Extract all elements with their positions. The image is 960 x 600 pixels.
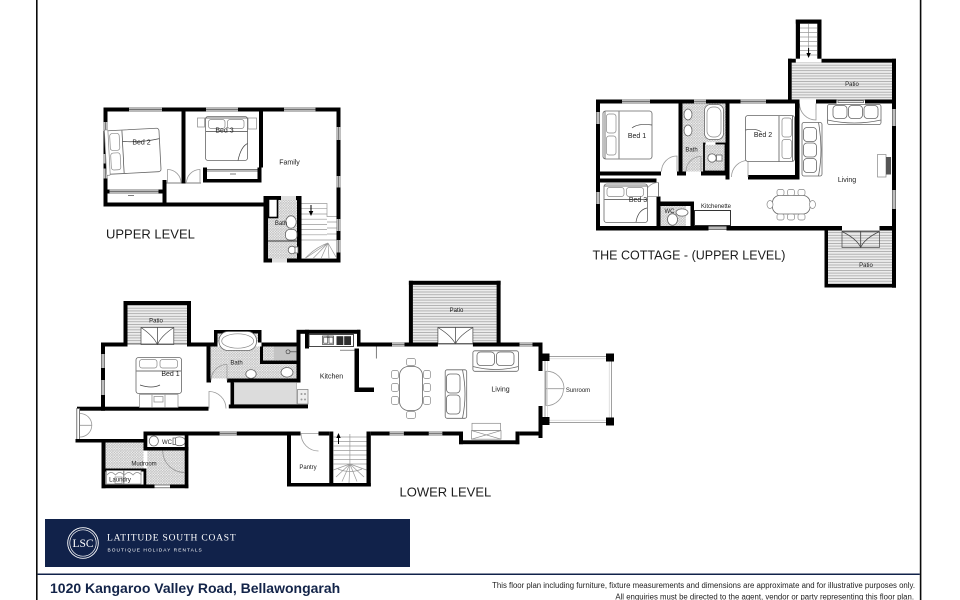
svg-text:Living: Living: [491, 387, 509, 394]
svg-text:UPPER LEVEL: UPPER LEVEL: [106, 227, 195, 242]
svg-text:Bed 3: Bed 3: [629, 197, 647, 204]
svg-text:Patio: Patio: [859, 263, 873, 269]
svg-text:WC: WC: [162, 440, 173, 446]
svg-text:WC: WC: [665, 209, 676, 215]
svg-text:Bath: Bath: [275, 221, 287, 227]
svg-text:LATITUDE SOUTH COAST: LATITUDE SOUTH COAST: [107, 534, 236, 544]
svg-text:LOWER LEVEL: LOWER LEVEL: [400, 485, 492, 500]
svg-text:All enquiries must be directed: All enquiries must be directed to the ag…: [615, 593, 914, 600]
svg-text:Laundry: Laundry: [109, 478, 131, 484]
svg-text:Bed 2: Bed 2: [754, 132, 772, 139]
svg-text:Bath: Bath: [685, 148, 697, 154]
svg-text:Kitchenette: Kitchenette: [701, 204, 732, 210]
svg-text:Bath: Bath: [230, 361, 242, 367]
svg-text:Living: Living: [838, 177, 856, 184]
svg-text:Bed 3: Bed 3: [215, 128, 233, 135]
svg-text:Kitchen: Kitchen: [320, 374, 343, 381]
svg-text:Mudroom: Mudroom: [131, 462, 156, 468]
svg-text:Pantry: Pantry: [299, 465, 316, 471]
svg-text:THE COTTAGE - (UPPER LEVEL): THE COTTAGE - (UPPER LEVEL): [593, 249, 786, 263]
svg-text:Bed 1: Bed 1: [161, 371, 179, 378]
svg-text:Sunroom: Sunroom: [566, 388, 590, 394]
svg-text:Bed 2: Bed 2: [132, 140, 150, 147]
svg-text:Bed 1: Bed 1: [628, 133, 646, 140]
svg-text:LSC: LSC: [72, 538, 93, 550]
svg-text:Patio: Patio: [845, 82, 859, 88]
svg-text:1020 Kangaroo Valley Road, Bel: 1020 Kangaroo Valley Road, Bellawongarah: [50, 580, 340, 596]
svg-text:Family: Family: [279, 160, 300, 167]
svg-text:Patio: Patio: [149, 319, 163, 325]
svg-text:This floor plan including furn: This floor plan including furniture, fix…: [492, 581, 915, 590]
svg-text:BOUTIQUE HOLIDAY RENTALS: BOUTIQUE HOLIDAY RENTALS: [108, 548, 203, 554]
svg-text:Patio: Patio: [450, 308, 464, 314]
